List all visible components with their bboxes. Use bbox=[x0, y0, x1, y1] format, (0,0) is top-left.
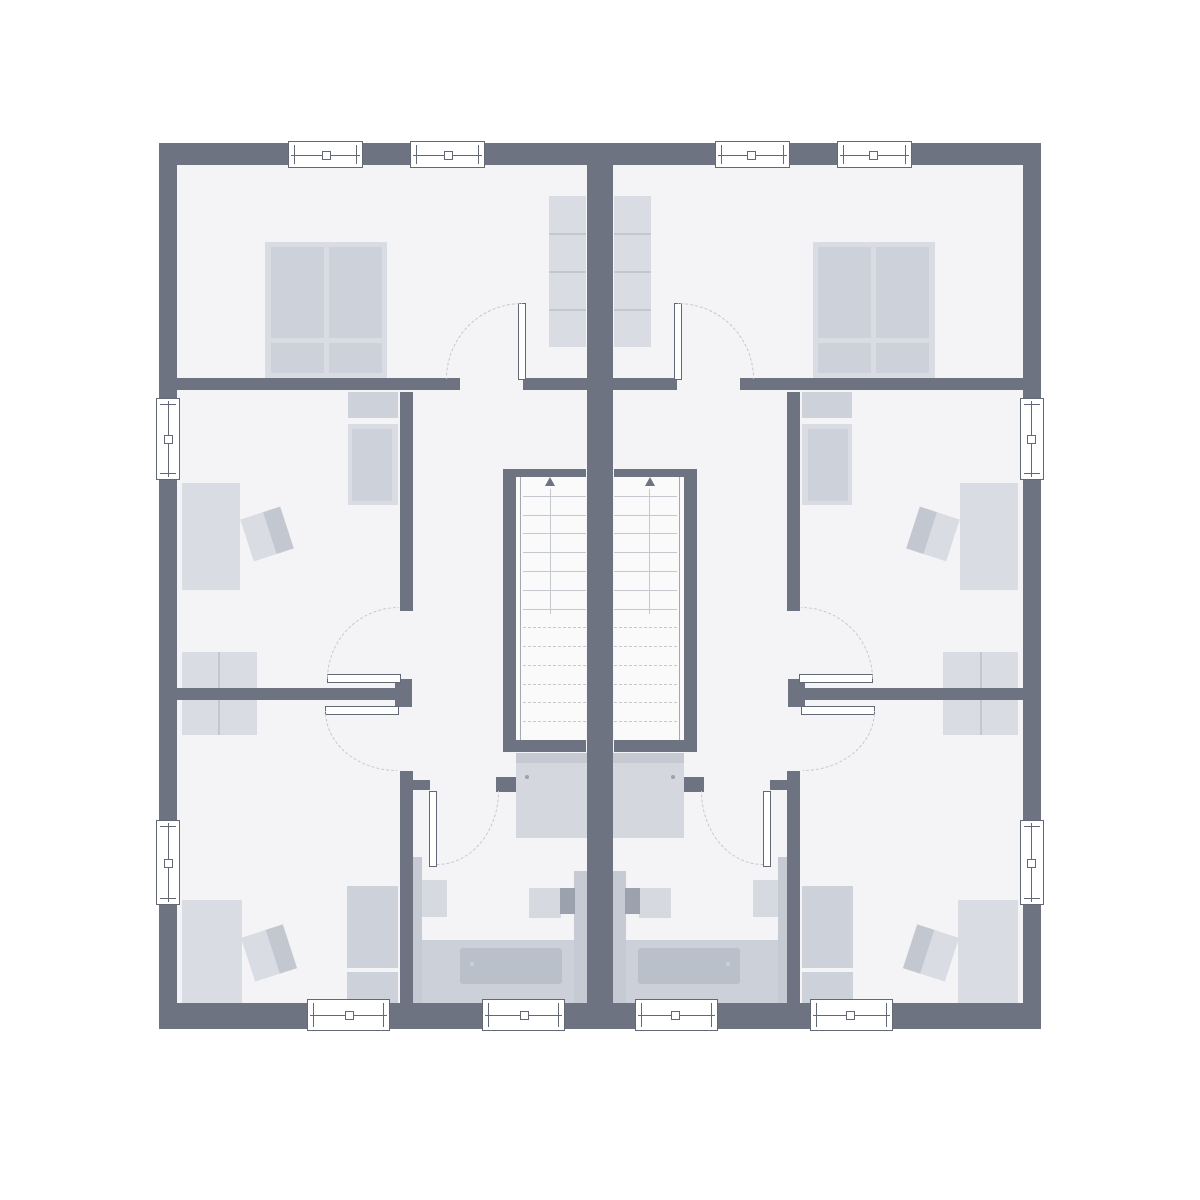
window-tick bbox=[905, 145, 906, 164]
window-tick bbox=[886, 1003, 887, 1027]
stair-tread bbox=[614, 533, 677, 534]
stair-tread bbox=[614, 515, 677, 516]
window-tick bbox=[783, 145, 784, 164]
window-handle bbox=[1027, 859, 1036, 868]
staircase bbox=[614, 477, 684, 740]
window-tick bbox=[1024, 898, 1040, 899]
floor-plan-canvas bbox=[0, 0, 1200, 1200]
bedroom-door-swing bbox=[678, 303, 754, 379]
stair-tread-dashed bbox=[614, 721, 677, 722]
stair-tread bbox=[614, 571, 677, 572]
window-tick bbox=[816, 1003, 817, 1027]
window-tick bbox=[711, 1003, 712, 1027]
window-handle bbox=[671, 1011, 680, 1020]
window-handle bbox=[1027, 435, 1036, 444]
unit-right-openings bbox=[0, 0, 1200, 1200]
stair-railing bbox=[679, 477, 680, 740]
window-tick bbox=[641, 1003, 642, 1027]
stair-tread bbox=[614, 609, 677, 610]
window-handle bbox=[846, 1011, 855, 1020]
bathroom-door-leaf bbox=[763, 791, 771, 867]
window-tick bbox=[721, 145, 722, 164]
bottomroom-door-swing bbox=[803, 711, 875, 771]
window-bathroom bbox=[635, 999, 718, 1031]
stair-direction-arrow bbox=[645, 477, 655, 486]
window-tick bbox=[1024, 826, 1040, 827]
window-midroom-side bbox=[1020, 398, 1044, 480]
stair-tread bbox=[614, 590, 677, 591]
window-tick bbox=[1024, 404, 1040, 405]
window-bedroom-2 bbox=[715, 141, 790, 168]
stair-tread-dashed bbox=[614, 702, 677, 703]
window-bedroom-1 bbox=[837, 141, 912, 168]
stair-tread-dashed bbox=[614, 684, 677, 685]
window-bottomroom-side bbox=[1020, 820, 1044, 905]
midroom-door-swing bbox=[801, 607, 873, 679]
stair-tread bbox=[614, 552, 677, 553]
stair-tread-dashed bbox=[614, 665, 677, 666]
window-handle bbox=[747, 151, 756, 160]
window-bottomroom bbox=[810, 999, 893, 1031]
window-tick bbox=[843, 145, 844, 164]
stair-walkline bbox=[649, 489, 650, 614]
stair-tread-dashed bbox=[614, 646, 677, 647]
window-handle bbox=[869, 151, 878, 160]
bathroom-door-swing bbox=[701, 791, 763, 865]
window-tick bbox=[1024, 473, 1040, 474]
stair-tread bbox=[614, 496, 677, 497]
stair-tread-dashed bbox=[614, 627, 677, 628]
